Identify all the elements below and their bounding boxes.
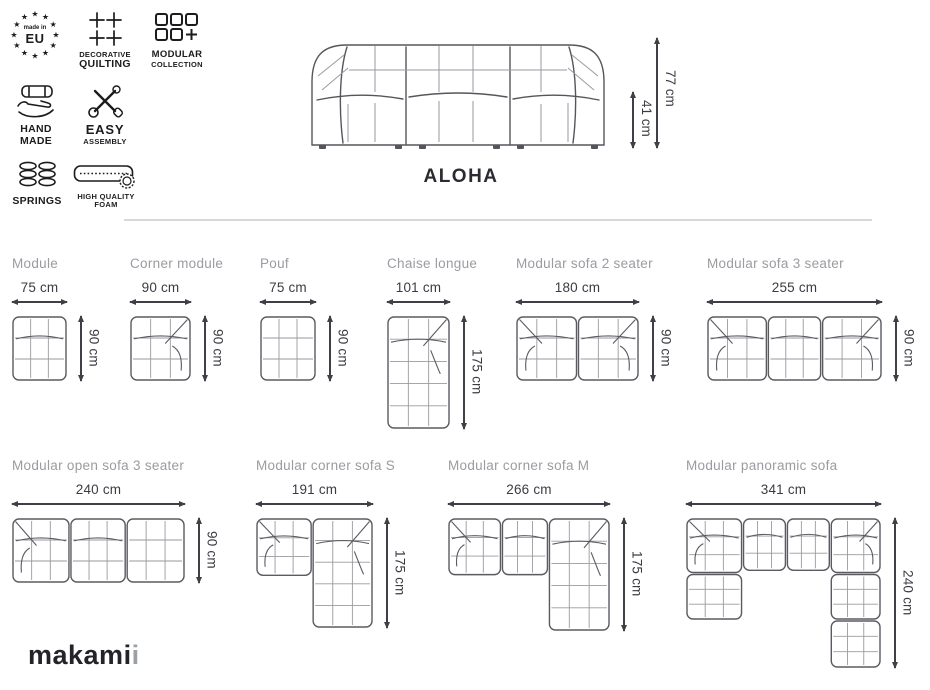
seat-height-arrow — [632, 92, 634, 148]
width-label: 90 cm — [130, 280, 191, 298]
product-open-sofa-3-seater: Modular open sofa 3 seater 240 cm 90 cm — [12, 458, 220, 583]
product-name: Modular sofa 2 seater — [516, 256, 653, 274]
depth-label: 90 cm — [211, 329, 226, 367]
product-name: Pouf — [260, 256, 289, 274]
module-topview — [12, 316, 67, 381]
depth-arrow — [895, 316, 897, 381]
width-label: 75 cm — [260, 280, 316, 298]
product-sofa-3-seater: Modular sofa 3 seater 255 cm 90 cm — [707, 256, 917, 381]
width-label: 255 cm — [707, 280, 882, 298]
product-name: Corner module — [130, 256, 223, 274]
feature-label: COLLECTION — [151, 61, 203, 69]
depth-label: 90 cm — [205, 531, 220, 569]
width-label: 191 cm — [256, 482, 373, 500]
brand-logo: makamii — [28, 640, 140, 671]
corner-sofa-s-topview — [256, 518, 373, 628]
modular-collection-icon — [154, 12, 200, 44]
width-arrow: 341 cm — [686, 482, 881, 505]
width-arrow: 90 cm — [130, 280, 191, 303]
pouf-topview — [260, 316, 316, 381]
svg-text:★: ★ — [31, 52, 38, 61]
svg-text:★: ★ — [42, 12, 49, 21]
sofa-2-seater-topview — [516, 316, 639, 381]
product-corner-module: Corner module 90 cm 90 cm — [130, 256, 226, 381]
svg-text:★: ★ — [31, 10, 38, 19]
product-name: Chaise longue — [387, 256, 477, 274]
feature-label: QUILTING — [79, 59, 131, 71]
width-arrow: 101 cm — [387, 280, 450, 303]
product-name: Modular sofa 3 seater — [707, 256, 844, 274]
eu-label: EU — [8, 31, 62, 46]
width-arrow: 266 cm — [448, 482, 610, 505]
depth-label: 90 cm — [336, 329, 351, 367]
feature-hand-made: HAND MADE — [8, 84, 64, 148]
chaise-longue-topview — [387, 316, 450, 429]
quilting-icon — [86, 12, 124, 46]
depth-label: 175 cm — [630, 551, 645, 596]
depth-arrow — [204, 316, 206, 381]
product-chaise-longue: Chaise longue 101 cm 175 cm — [387, 256, 485, 429]
depth-arrow — [386, 518, 388, 628]
sofa-front-illustration — [303, 30, 613, 152]
feature-label: FOAM — [94, 201, 117, 209]
product-corner-sofa-m: Modular corner sofa M 266 cm 175 cm — [448, 458, 645, 631]
hand-made-icon — [14, 84, 58, 120]
depth-label: 90 cm — [659, 329, 674, 367]
product-pouf: Pouf 75 cm 90 cm — [260, 256, 351, 381]
feature-label: HAND — [20, 124, 52, 136]
product-name: Modular panoramic sofa — [686, 458, 837, 476]
corner-sofa-m-topview — [448, 518, 610, 631]
feature-high-quality-foam: HIGH QUALITY FOAM — [70, 162, 142, 210]
product-corner-sofa-s: Modular corner sofa S 191 cm 175 cm — [256, 458, 408, 628]
total-height-label: 77 cm — [663, 70, 678, 107]
product-name: Modular corner sofa S — [256, 458, 395, 476]
total-height-arrow — [656, 38, 658, 148]
width-label: 240 cm — [12, 482, 185, 500]
feature-label: ASSEMBLY — [83, 138, 126, 146]
sofa-3-seater-topview — [707, 316, 882, 381]
easy-assembly-icon — [86, 84, 124, 120]
product-panoramic-sofa: Modular panoramic sofa 341 cm 240 cm — [686, 458, 916, 668]
feature-decorative-quilting: DECORATIVE QUILTING — [74, 12, 136, 71]
depth-arrow — [329, 316, 331, 381]
feature-label: SPRINGS — [12, 196, 61, 208]
product-name: Module — [12, 256, 58, 274]
width-arrow: 191 cm — [256, 482, 373, 505]
seat-height-label: 41 cm — [639, 100, 654, 137]
page-title: ALOHA — [333, 166, 589, 188]
product-name: Modular open sofa 3 seater — [12, 458, 184, 476]
width-arrow: 255 cm — [707, 280, 882, 303]
depth-arrow — [894, 518, 896, 668]
svg-text:★: ★ — [21, 12, 28, 21]
depth-label: 240 cm — [901, 570, 916, 615]
width-label: 101 cm — [387, 280, 450, 298]
panoramic-sofa-topview — [686, 518, 881, 668]
svg-text:★: ★ — [21, 49, 28, 58]
corner-module-topview — [130, 316, 191, 381]
divider — [124, 219, 872, 221]
depth-label: 175 cm — [470, 349, 485, 394]
open-sofa-3-seater-topview — [12, 518, 185, 583]
width-arrow: 180 cm — [516, 280, 639, 303]
feature-modular-collection: MODULAR COLLECTION — [146, 12, 208, 69]
brand-logo-accent: i — [132, 640, 140, 670]
product-sofa-2-seater: Modular sofa 2 seater 180 cm 90 cm — [516, 256, 674, 381]
depth-label: 90 cm — [902, 329, 917, 367]
feature-label: EASY — [86, 123, 125, 138]
width-label: 180 cm — [516, 280, 639, 298]
feature-easy-assembly: EASY ASSEMBLY — [74, 84, 136, 146]
foam-icon — [73, 162, 139, 190]
spec-sheet: ★★★★★★★★★★★★ made in EU DECORATIVE QUILT… — [0, 0, 930, 690]
depth-arrow — [623, 518, 625, 631]
product-module: Module 75 cm 90 cm — [12, 256, 102, 381]
width-label: 341 cm — [686, 482, 881, 500]
width-arrow: 75 cm — [260, 280, 316, 303]
feature-springs: SPRINGS — [10, 160, 64, 208]
width-label: 266 cm — [448, 482, 610, 500]
feature-made-in-eu: ★★★★★★★★★★★★ made in EU — [8, 8, 62, 62]
depth-label: 90 cm — [87, 329, 102, 367]
width-label: 75 cm — [12, 280, 67, 298]
feature-label: MADE — [20, 136, 52, 148]
depth-arrow — [652, 316, 654, 381]
depth-arrow — [80, 316, 82, 381]
springs-icon — [17, 160, 57, 190]
depth-label: 175 cm — [393, 550, 408, 595]
brand-logo-main: makami — [28, 640, 132, 670]
depth-arrow — [198, 518, 200, 583]
width-arrow: 240 cm — [12, 482, 185, 505]
svg-text:★: ★ — [42, 49, 49, 58]
depth-arrow — [463, 316, 465, 429]
width-arrow: 75 cm — [12, 280, 67, 303]
product-name: Modular corner sofa M — [448, 458, 589, 476]
